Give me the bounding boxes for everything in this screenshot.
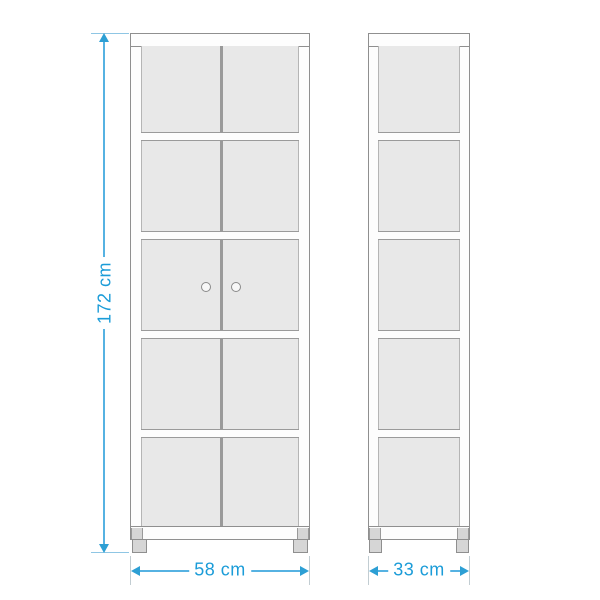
arrow-left-icon — [369, 566, 378, 576]
front-foot-right — [293, 540, 308, 553]
side-foot-right — [456, 540, 469, 553]
shelf-line — [378, 132, 460, 141]
extension-tick-bottom — [91, 552, 129, 553]
arrow-up-icon — [99, 33, 109, 42]
plinth-corner-left — [369, 528, 381, 539]
arrow-left-icon — [131, 566, 140, 576]
front-foot-left — [132, 540, 147, 553]
plinth-corner-right — [457, 528, 469, 539]
side-view — [368, 33, 470, 554]
product-dimension-diagram: 172 cm 58 cm 33 cm — [0, 0, 600, 600]
door-gap-line — [220, 46, 223, 526]
plinth — [369, 526, 469, 539]
plinth — [131, 526, 309, 539]
height-dimension-label: 172 cm — [95, 257, 116, 329]
left-door-knob — [201, 282, 211, 292]
side-cabinet-outline — [368, 33, 470, 540]
front-door-panels — [141, 46, 299, 526]
side-foot-left — [369, 540, 382, 553]
front-view — [130, 33, 310, 554]
shelf-line — [141, 231, 299, 240]
shelf-line — [378, 231, 460, 240]
side-panel — [378, 46, 460, 526]
extension-tick-top — [91, 33, 129, 34]
right-door-knob — [231, 282, 241, 292]
width-dimension-label: 58 cm — [189, 560, 251, 581]
depth-dimension-label: 33 cm — [388, 560, 450, 581]
plinth-corner-left — [131, 528, 143, 539]
arrow-right-icon — [300, 566, 309, 576]
arrow-down-icon — [99, 544, 109, 553]
plinth-corner-right — [297, 528, 309, 539]
shelf-line — [378, 429, 460, 438]
shelf-line — [141, 429, 299, 438]
arrow-right-icon — [460, 566, 469, 576]
shelf-line — [378, 330, 460, 339]
shelf-line — [141, 330, 299, 339]
front-cabinet-outline — [130, 33, 310, 540]
extension-line-right — [469, 556, 470, 585]
shelf-line — [141, 132, 299, 141]
extension-line-right — [309, 556, 310, 585]
